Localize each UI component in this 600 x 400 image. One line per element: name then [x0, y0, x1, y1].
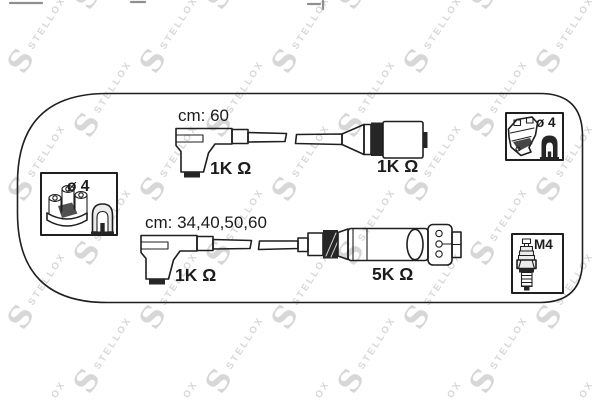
legend-box-spark-plug: M4	[512, 234, 563, 293]
terminal-boot-icon	[91, 204, 114, 235]
wire-top-right-resistance-label: 1K Ω	[377, 156, 418, 176]
wire-top-left-resistance-label: 1K Ω	[210, 158, 251, 178]
wire-bottom-ferrule	[197, 237, 213, 251]
line-art: cm: 60 1K Ω 1K Ω	[0, 0, 600, 400]
wire-bottom-lead-segment-2	[259, 241, 299, 250]
wire-top: cm: 60 1K Ω 1K Ω	[176, 106, 428, 178]
legend-box-distributor-a: ø 4	[41, 173, 117, 235]
wire-bottom-right-resistance-label: 5K Ω	[372, 264, 413, 284]
legend-box-distributor-b: ø 4	[506, 113, 563, 160]
wire-bottom-length-label: cm: 34,40,50,60	[145, 213, 267, 232]
wire-bottom-distributor-connector-icon	[298, 225, 461, 266]
wire-top-ferrule	[232, 130, 248, 144]
legend-box-b-label: ø 4	[536, 115, 556, 130]
wire-top-length-label: cm: 60	[178, 106, 229, 125]
wire-top-coil-connector-icon	[342, 122, 428, 159]
wire-top-lead-segment-1	[248, 133, 287, 143]
legend-box-a-label: ø 4	[67, 178, 90, 195]
wire-bottom-lead-segment-1	[213, 240, 252, 250]
ignition-cable-kit-illustration: SSTELLOXSSTELLOXSSTELLOXSSTELLOXSSTELLOX…	[0, 0, 600, 400]
scan-artifacts	[10, 1, 323, 9]
panel-border	[18, 94, 583, 303]
terminal-boot-dark-icon	[540, 136, 559, 160]
wire-bottom-left-resistance-label: 1K Ω	[175, 265, 216, 285]
wire-bottom: cm: 34,40,50,60 1K Ω 5K Ω	[141, 213, 461, 285]
wire-top-lead-segment-2	[296, 134, 343, 145]
legend-box-spark-plug-label: M4	[534, 237, 553, 252]
distributor-cap-flat-icon	[509, 117, 538, 156]
